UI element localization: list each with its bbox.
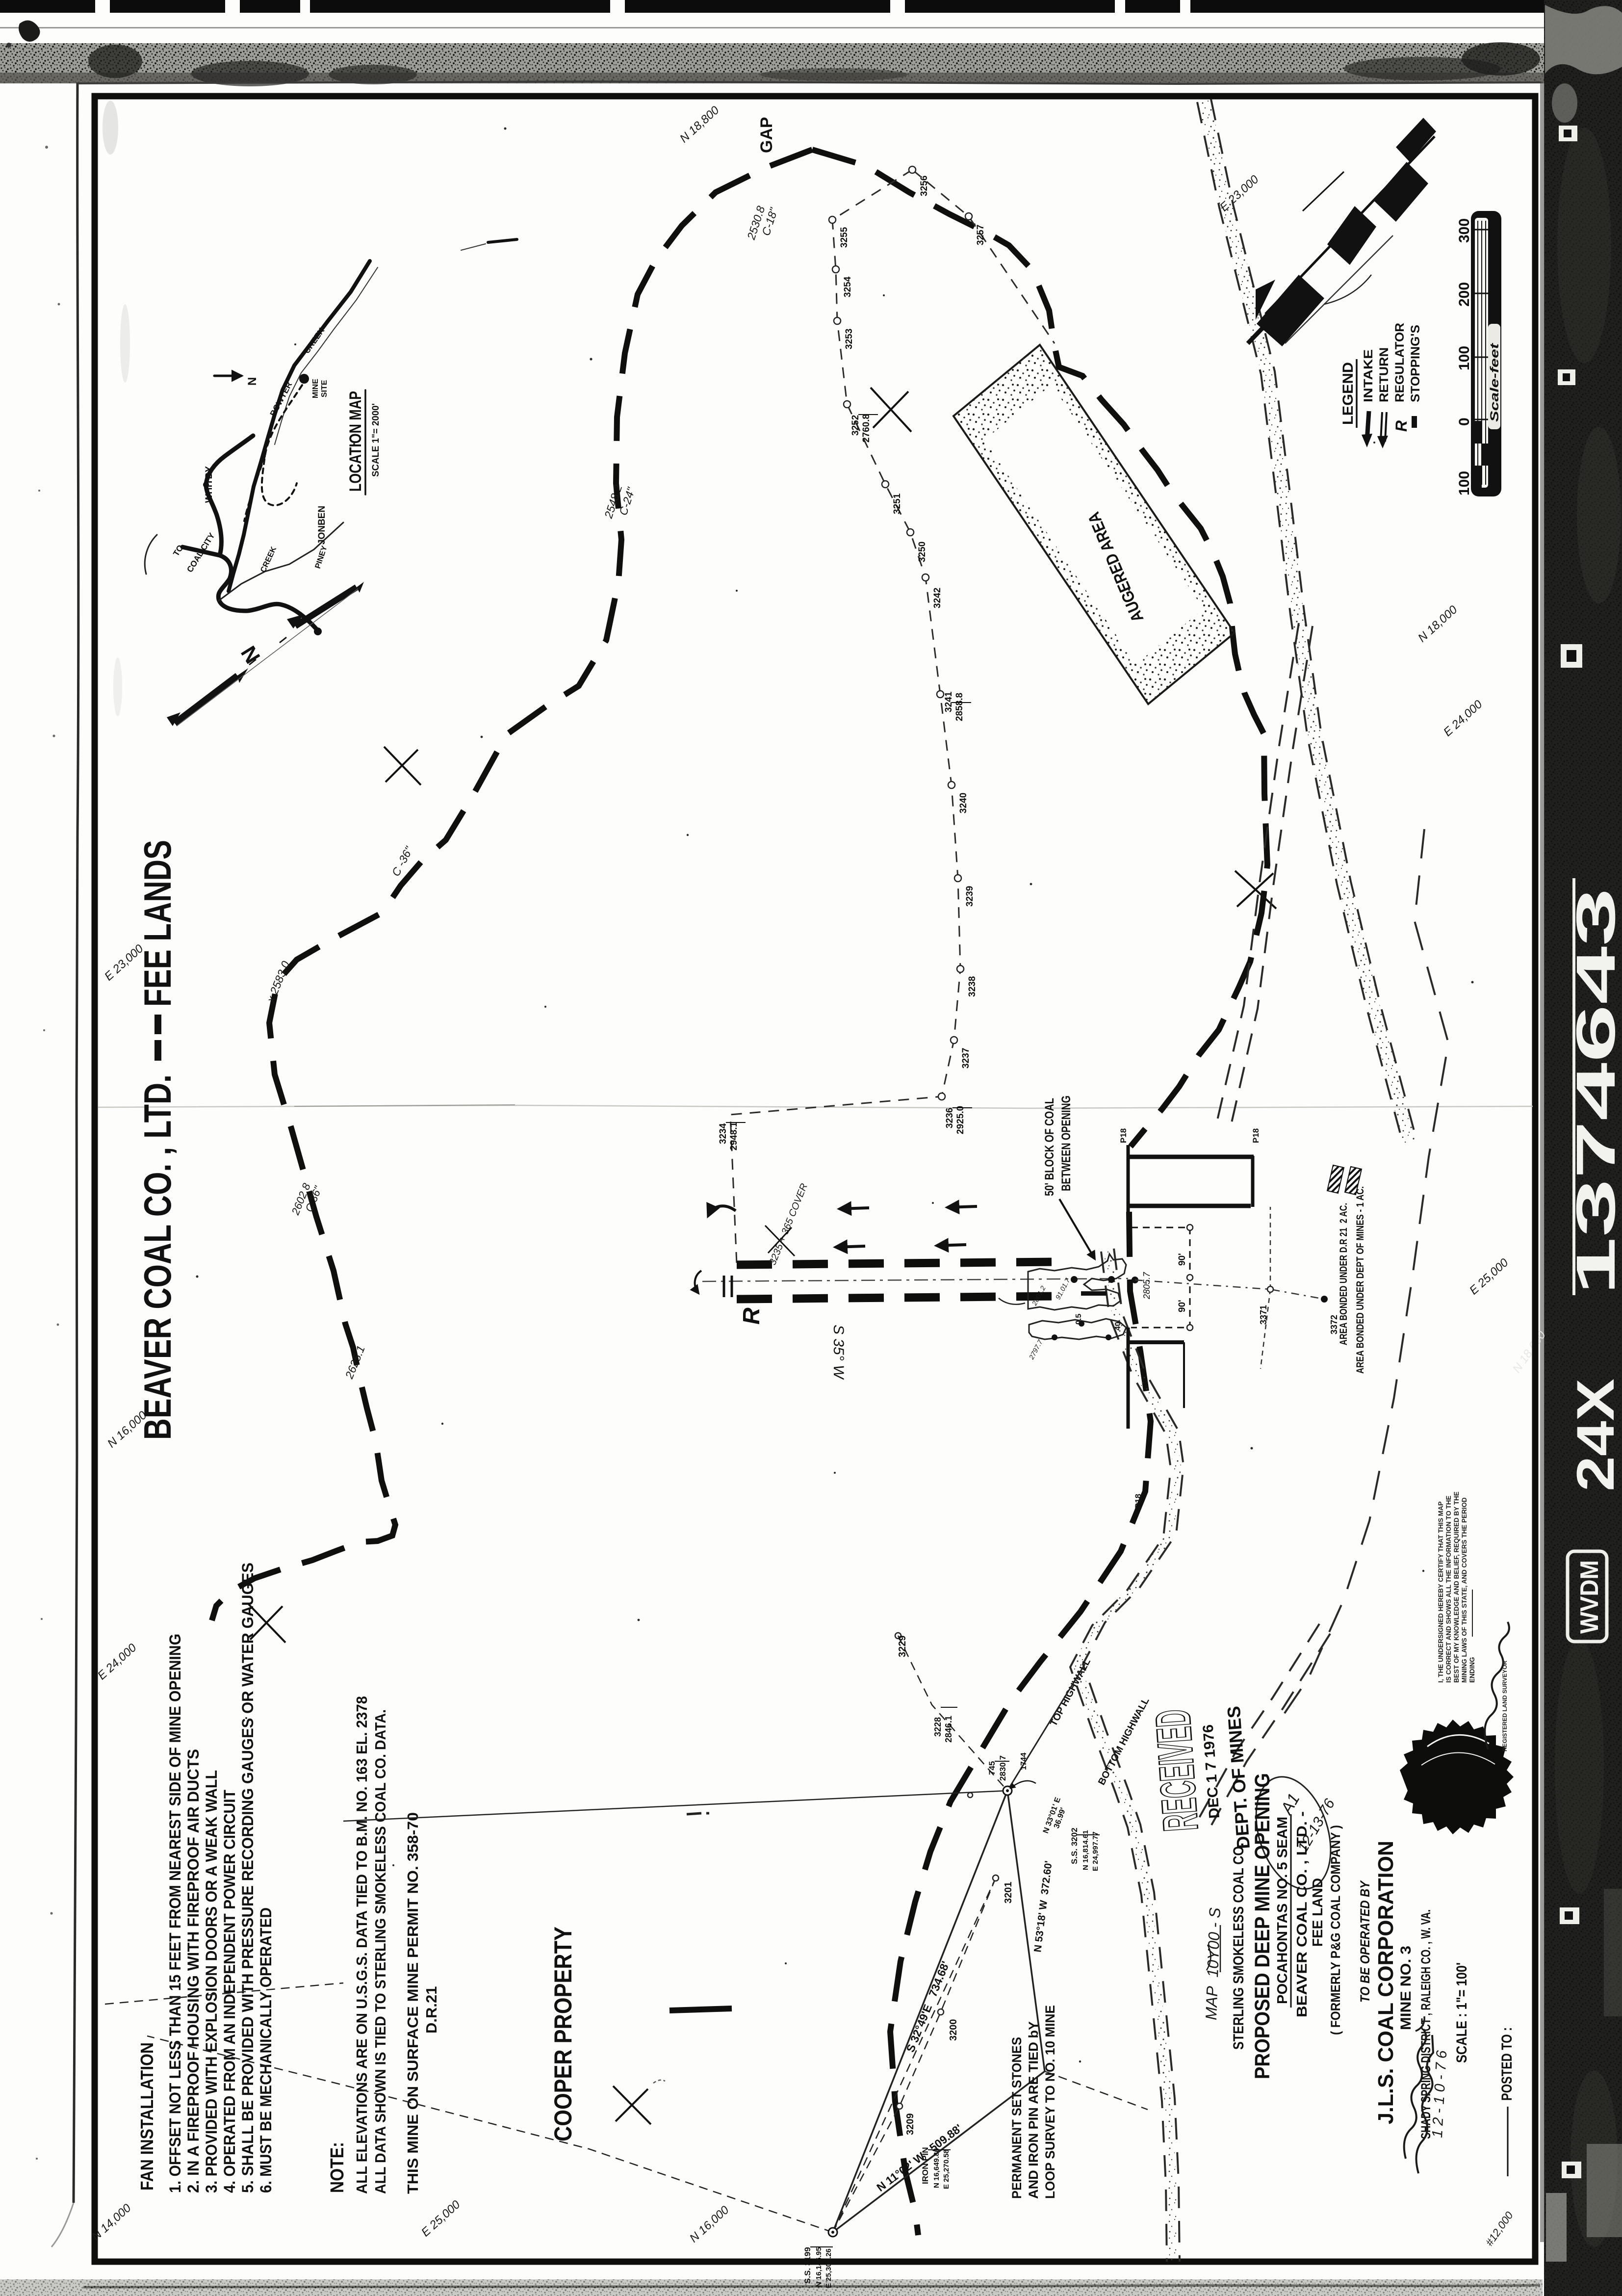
svg-text:D.R.21: D.R.21	[423, 1986, 440, 2034]
svg-text:N: N	[246, 377, 259, 386]
svg-text:N 16,814.61: N 16,814.61	[1081, 1830, 1090, 1870]
svg-text:WVDM: WVDM	[1575, 1560, 1604, 1634]
svg-text:( FORMERLY P&G COAL COMPAN: ( FORMERLY P&G COAL COMPANY )	[1328, 1825, 1343, 2035]
svg-text:3237: 3237	[961, 1048, 971, 1069]
svg-text:100: 100	[1456, 346, 1472, 370]
svg-text:ENDING: ENDING	[1468, 1657, 1476, 1683]
svg-text:SITE: SITE	[320, 380, 329, 397]
svg-text:745: 745	[987, 1761, 997, 1775]
svg-text:BETWEEN OPENING: BETWEEN OPENING	[1059, 1096, 1073, 1191]
svg-text:3201: 3201	[1003, 1882, 1014, 1904]
svg-text:0: 0	[1456, 417, 1472, 426]
svg-text:IRON PIN: IRON PIN	[921, 2147, 930, 2184]
svg-text:RECEIVED: RECEIVED	[1145, 1708, 1209, 1833]
svg-text:90': 90'	[1177, 1253, 1187, 1266]
svg-text:E 25,270.58: E 25,270.58	[942, 2149, 951, 2189]
svg-text:PROPOSED DEEP MINE OPENING: PROPOSED DEEP MINE OPENING	[1251, 1773, 1274, 2079]
svg-text:FEE LANDS: FEE LANDS	[136, 840, 179, 1007]
svg-text:TO BE OPERATED BY: TO BE OPERATED BY	[1358, 1879, 1372, 2003]
svg-text:RETURN: RETURN	[1377, 347, 1391, 402]
svg-text:3200: 3200	[948, 2019, 959, 2041]
svg-text:SCALE 1"= 2000': SCALE 1"= 2000'	[371, 403, 381, 477]
svg-text:6. MUST BE MECHANICALLY OPE: 6. MUST BE MECHANICALLY OPERATED	[257, 1907, 275, 2193]
svg-text:E 24,997.77: E 24,997.77	[1091, 1831, 1100, 1871]
svg-text:3228: 3228	[933, 1717, 943, 1737]
svg-text:1374643: 1374643	[1565, 888, 1622, 1295]
svg-text:LOOP SURVEY TO NO. 10 MINE: LOOP SURVEY TO NO. 10 MINE	[1043, 2005, 1057, 2199]
svg-text:2805.7: 2805.7	[1142, 1272, 1152, 1300]
svg-text:4. OPERATED FROM AN INDEPEN: 4. OPERATED FROM AN INDEPENDENT POWER CI…	[221, 1790, 238, 2193]
svg-text:3229: 3229	[897, 1636, 908, 1658]
svg-text:BEST OF MY KNOWLEDGE AND BELIE: BEST OF MY KNOWLEDGE AND BELIEF, REQUIRE…	[1453, 1491, 1460, 1683]
svg-text:FEE LAND: FEE LAND	[1310, 1878, 1326, 1947]
svg-text:WHITBY: WHITBY	[204, 466, 214, 503]
svg-text:3252: 3252	[850, 415, 861, 436]
svg-text:3256: 3256	[919, 176, 929, 196]
svg-text:J.L.S. COAL CORPORATION: J.L.S. COAL CORPORATION	[1374, 1841, 1398, 2124]
svg-text:S.S. 3202: S.S. 3202	[1070, 1827, 1079, 1864]
svg-text:3. PROVIDED WITH EXPLOSION: 3. PROVIDED WITH EXPLOSION DOORS OR A WE…	[203, 1770, 220, 2193]
svg-text:3241: 3241	[944, 691, 954, 712]
svg-text:N 16,146.95: N 16,146.95	[815, 2247, 823, 2287]
svg-text:POCAHONTAS NO. 5 SEAM: POCAHONTAS NO. 5 SEAM	[1275, 1817, 1290, 2004]
svg-text:ALL ELEVATIONS ARE ON U.S.: ALL ELEVATIONS ARE ON U.S.G.S. DATA TIED…	[353, 1696, 370, 2194]
svg-text:3209: 3209	[905, 2113, 916, 2136]
svg-text:3234: 3234	[718, 1123, 728, 1144]
svg-text:LOCATION MAP: LOCATION MAP	[346, 391, 365, 492]
svg-text:1744: 1744	[1020, 1752, 1028, 1770]
svg-text:E 25,308.26: E 25,308.26	[824, 2248, 833, 2288]
svg-text:PERMANENT SET STONES: PERMANENT SET STONES	[1009, 2037, 1024, 2199]
svg-text:3251: 3251	[892, 493, 902, 514]
svg-text:3238: 3238	[967, 976, 978, 997]
svg-text:0.5: 0.5	[1075, 1314, 1083, 1325]
svg-text:SCALE : 1"= 100': SCALE : 1"= 100'	[1454, 1962, 1470, 2063]
svg-text:P18: P18	[1133, 1494, 1143, 1509]
svg-text:3371: 3371	[1259, 1305, 1268, 1325]
svg-text:FAN INSTALLATION: FAN INSTALLATION	[137, 2042, 157, 2191]
svg-text:AND IRON PIN ARE TIED bY: AND IRON PIN ARE TIED bY	[1026, 2021, 1041, 2199]
svg-text:COOPER PROPERTY: COOPER PROPERTY	[549, 1927, 577, 2141]
svg-text:I, THE UNDERSIGNED HEREBY CERT: I, THE UNDERSIGNED HEREBY CERTIFY THAT T…	[1437, 1501, 1444, 1683]
svg-text:24X: 24X	[1566, 1379, 1622, 1491]
svg-text:GAP: GAP	[757, 117, 776, 153]
svg-text:STOPPING'S: STOPPING'S	[1409, 325, 1422, 402]
svg-text:200: 200	[1456, 282, 1472, 307]
svg-text:3254: 3254	[843, 276, 853, 297]
svg-text:5. SHALL BE PROVIDED WITH: 5. SHALL BE PROVIDED WITH PRESSURE RECOR…	[239, 1563, 257, 2193]
svg-text:2948.1: 2948.1	[729, 1122, 739, 1150]
svg-text:NOTE:: NOTE:	[327, 2142, 348, 2193]
svg-text:S 35° W: S 35° W	[830, 1325, 847, 1380]
svg-text:3242: 3242	[932, 588, 943, 608]
svg-text:2846.1: 2846.1	[944, 1716, 953, 1743]
svg-text:BEAVER COAL CO. , LTD. -: BEAVER COAL CO. , LTD. -	[1294, 1811, 1310, 2017]
svg-text:ALL DATA SHOWN IS TIED TO: ALL DATA SHOWN IS TIED TO STERLING SMOKE…	[372, 1709, 389, 2194]
svg-text:R: R	[739, 1307, 765, 1325]
svg-text:50' BLOCK OF COAL: 50' BLOCK OF COAL	[1043, 1098, 1056, 1196]
svg-text:BEAVER COAL CO. , LTD.: BEAVER COAL CO. , LTD.	[136, 1074, 179, 1440]
svg-text:2830.7: 2830.7	[998, 1755, 1007, 1781]
svg-text:THIS MINE ON SURFACE MINE: THIS MINE ON SURFACE MINE PERMIT NO. 358…	[404, 1812, 421, 2194]
svg-text:3240: 3240	[958, 793, 969, 813]
svg-text:N 16,649.86: N 16,649.86	[932, 2148, 941, 2188]
svg-text:MINE: MINE	[311, 379, 320, 398]
svg-text:P18: P18	[1119, 1128, 1128, 1143]
svg-text:2925.0: 2925.0	[955, 1106, 966, 1134]
svg-text:POSTED TO :: POSTED TO :	[1499, 2027, 1515, 2101]
svg-text:3253: 3253	[844, 329, 854, 349]
svg-text:100: 100	[1456, 471, 1472, 496]
svg-text:2. IN A FIREPROOF HOUSING WI: 2. IN A FIREPROOF HOUSING WITH FIREPROOF…	[184, 1749, 202, 2193]
svg-text:1. OFFSET NOT LESS THAN 15 FE: 1. OFFSET NOT LESS THAN 15 FEET FROM NEA…	[166, 1634, 184, 2193]
svg-text:3250: 3250	[917, 542, 927, 562]
svg-text:MINING LAWS OF THIS STATE, AND: MINING LAWS OF THIS STATE, AND COVERS TH…	[1461, 1497, 1468, 1683]
svg-text:S.S. 3199: S.S. 3199	[803, 2247, 812, 2284]
svg-text:2760.8: 2760.8	[861, 414, 872, 443]
svg-text:INTAKE: INTAKE	[1362, 349, 1375, 402]
svg-text:90': 90'	[1177, 1300, 1187, 1312]
svg-text:3255: 3255	[839, 227, 850, 248]
svg-text:3257: 3257	[976, 225, 986, 245]
svg-text:REGULATOR: REGULATOR	[1393, 323, 1407, 402]
svg-text:IS CORRECT AND SHOWS ALL THE I: IS CORRECT AND SHOWS ALL THE INFORMATION…	[1445, 1496, 1452, 1683]
svg-text:3372: 3372	[1329, 1315, 1339, 1334]
svg-text:3239: 3239	[965, 886, 975, 907]
svg-text:40: 40	[1114, 1322, 1122, 1331]
svg-text:Scale-feet: Scale-feet	[1488, 343, 1501, 422]
svg-text:P18: P18	[1251, 1128, 1261, 1143]
svg-text:REGISTERED LAND SURVEYOR: REGISTERED LAND SURVEYOR	[1501, 1661, 1508, 1751]
svg-text:3236: 3236	[945, 1108, 955, 1128]
svg-text:JONBEN: JONBEN	[317, 506, 327, 545]
svg-text:AREA BONDED UNDER DEPT OF: AREA BONDED UNDER DEPT OF MINES - 1 AC.	[1355, 1186, 1366, 1374]
svg-text:MINE NO. 3: MINE NO. 3	[1398, 1946, 1414, 2030]
svg-text:300: 300	[1456, 218, 1472, 243]
svg-text:AREA BONDED UNDER D.R 21 2: AREA BONDED UNDER D.R 21 2 AC.	[1338, 1203, 1349, 1345]
svg-text:R: R	[1392, 420, 1410, 432]
svg-text:LEGEND: LEGEND	[1340, 362, 1356, 425]
svg-text:2858.8: 2858.8	[954, 693, 965, 721]
svg-text:STERLING SMOKELESS COAL CO.: STERLING SMOKELESS COAL CO.	[1231, 1843, 1247, 2050]
